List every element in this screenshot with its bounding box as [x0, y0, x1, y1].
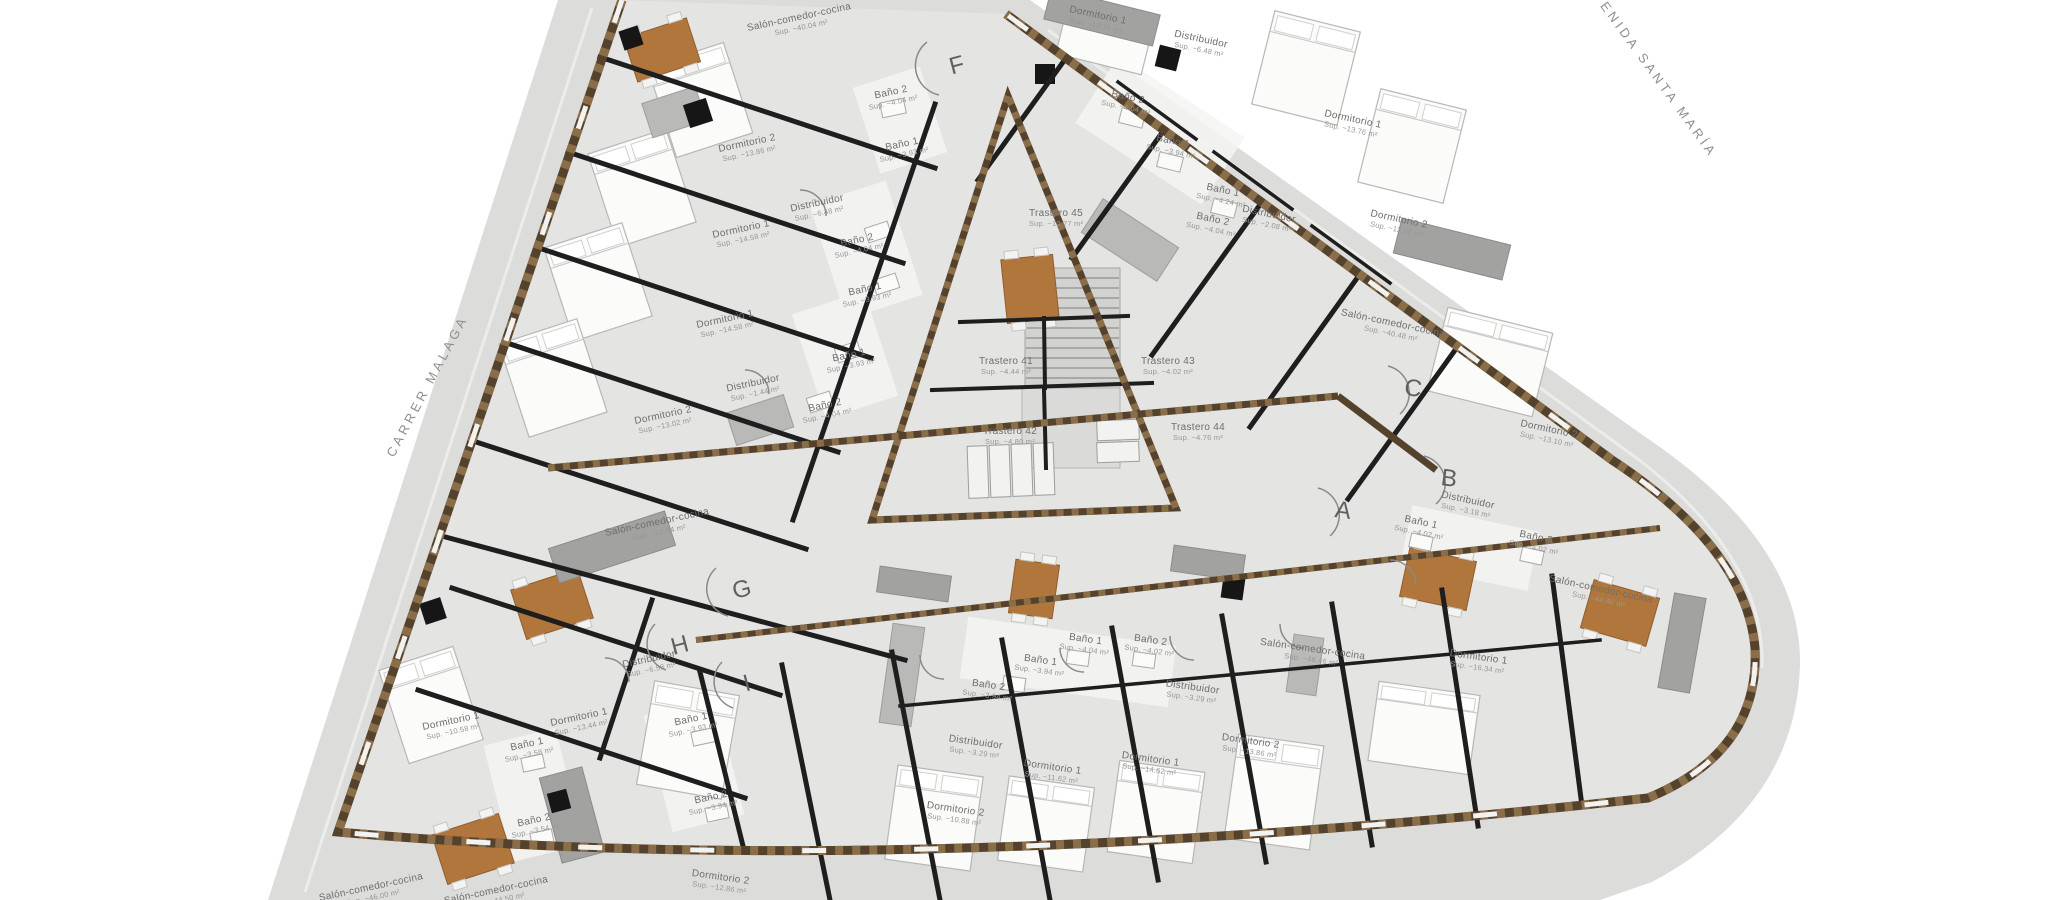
stove [1155, 45, 1182, 72]
bed [1358, 89, 1467, 203]
bath-fixture [1132, 652, 1156, 669]
storage-box [989, 445, 1011, 498]
storage-box [967, 446, 989, 499]
floor-plan-page: CARRER MALAGA AVENIDA SANTA MARÍA Salón-… [0, 0, 2048, 900]
bed [1107, 760, 1205, 863]
bath-fixture [1066, 650, 1090, 667]
bed [998, 776, 1095, 872]
bath-fixture [1002, 676, 1026, 693]
bed [1252, 11, 1361, 125]
dining-table [1007, 551, 1060, 626]
bed [885, 765, 983, 871]
floor-plan-canvas [0, 0, 2048, 900]
storage-box [1097, 419, 1140, 440]
storage-box [1011, 444, 1033, 497]
storage-box [1097, 441, 1140, 462]
